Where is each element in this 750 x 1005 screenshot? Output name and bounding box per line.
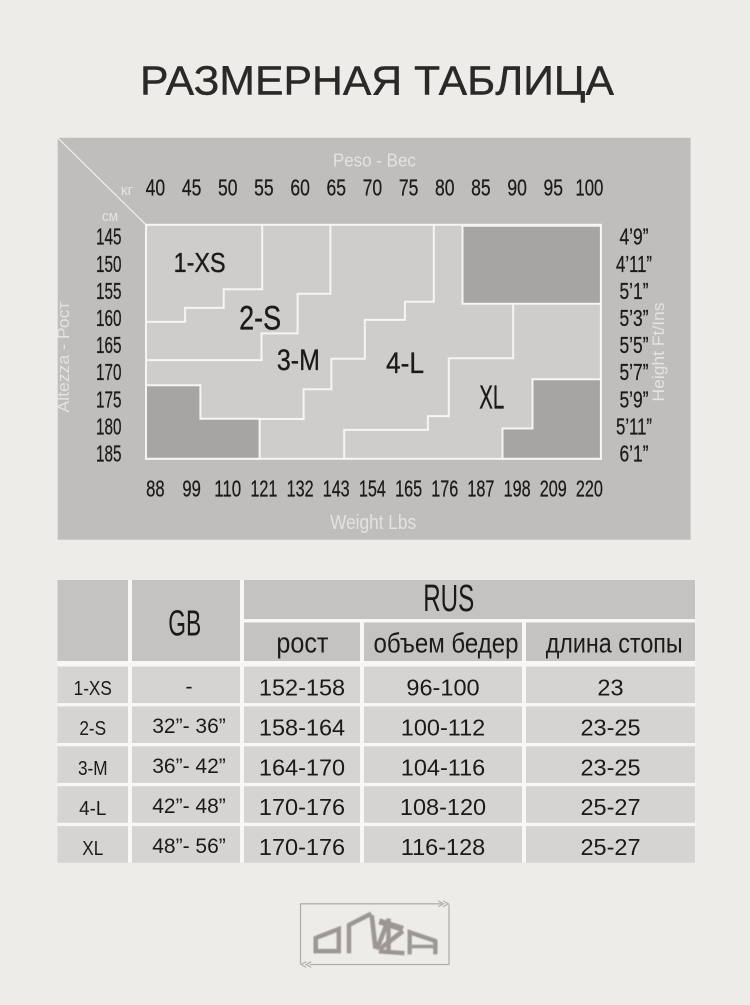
svg-text:198: 198	[504, 476, 531, 502]
svg-text:Height Ft/Ins: Height Ft/Ins	[649, 303, 668, 402]
svg-text:1-XS: 1-XS	[174, 247, 226, 278]
svg-text:4-L: 4-L	[386, 347, 424, 380]
svg-text:5’5”: 5’5”	[620, 332, 649, 358]
svg-text:3-M: 3-M	[277, 344, 320, 377]
svg-text:175: 175	[96, 386, 122, 412]
svg-text:132: 132	[287, 476, 314, 502]
svg-text:152-158: 152-158	[259, 675, 345, 701]
svg-text:154: 154	[359, 476, 386, 502]
svg-text:длина стопы: длина стопы	[546, 628, 683, 659]
svg-text:5’3”: 5’3”	[620, 305, 649, 331]
svg-text:185: 185	[96, 441, 122, 467]
svg-text:209: 209	[540, 476, 567, 502]
svg-text:40: 40	[146, 175, 166, 201]
svg-text:РАЗМЕРНАЯ ТАБЛИЦА: РАЗМЕРНАЯ ТАБЛИЦА	[140, 58, 615, 104]
svg-text:85: 85	[471, 175, 491, 201]
svg-text:5’9”: 5’9”	[620, 386, 649, 412]
svg-text:90: 90	[507, 175, 527, 201]
svg-text:Altezza - Рост: Altezza - Рост	[54, 301, 73, 412]
svg-text:GB: GB	[168, 603, 201, 644]
svg-text:23-25: 23-25	[580, 714, 640, 740]
svg-text:объем бедер: объем бедер	[374, 628, 519, 659]
svg-text:60: 60	[290, 175, 310, 201]
svg-text:75: 75	[399, 175, 419, 201]
svg-text:55: 55	[254, 175, 274, 201]
svg-text:23-25: 23-25	[580, 754, 640, 780]
svg-text:6’1”: 6’1”	[620, 441, 649, 467]
svg-text:110: 110	[214, 476, 241, 502]
svg-text:170: 170	[96, 359, 122, 385]
svg-text:4’11”: 4’11”	[616, 251, 652, 277]
svg-text:187: 187	[467, 476, 494, 502]
svg-text:23: 23	[597, 675, 623, 701]
svg-text:Weight Lbs: Weight Lbs	[330, 511, 416, 534]
svg-text:108-120: 108-120	[400, 794, 486, 820]
svg-text:176: 176	[431, 476, 458, 502]
svg-text:104-116: 104-116	[401, 754, 486, 780]
svg-text:1-XS: 1-XS	[74, 677, 112, 700]
svg-text:143: 143	[323, 476, 350, 502]
svg-text:99: 99	[182, 476, 201, 502]
svg-text:2-S: 2-S	[239, 299, 281, 337]
svg-text:4-L: 4-L	[79, 797, 106, 820]
svg-text:70: 70	[363, 175, 383, 201]
svg-text:25-27: 25-27	[580, 834, 640, 860]
svg-text:32”- 36”: 32”- 36”	[152, 715, 226, 738]
svg-text:158-164: 158-164	[259, 714, 345, 740]
svg-text:рост: рост	[276, 628, 328, 660]
svg-text:95: 95	[544, 175, 564, 201]
svg-text:160: 160	[96, 305, 122, 331]
svg-text:100-112: 100-112	[401, 714, 486, 740]
svg-text:180: 180	[96, 413, 122, 439]
svg-text:100: 100	[575, 175, 603, 201]
svg-text:220: 220	[576, 476, 603, 502]
svg-text:36”- 42”: 36”- 42”	[152, 755, 226, 778]
svg-text:48”- 56”: 48”- 56”	[152, 835, 226, 858]
svg-text:145: 145	[96, 224, 122, 250]
svg-text:80: 80	[435, 175, 455, 201]
svg-text:Peso - Вес: Peso - Вес	[333, 149, 416, 170]
svg-text:165: 165	[395, 476, 422, 502]
svg-text:121: 121	[250, 476, 277, 502]
svg-text:50: 50	[218, 175, 238, 201]
svg-text:см: см	[102, 208, 118, 225]
svg-text:164-170: 164-170	[259, 754, 345, 780]
svg-text:170-176: 170-176	[259, 794, 345, 820]
svg-text:3-M: 3-M	[78, 757, 108, 780]
svg-text:65: 65	[326, 175, 346, 201]
svg-text:-: -	[186, 675, 193, 698]
svg-text:155: 155	[96, 278, 122, 304]
svg-text:5’11”: 5’11”	[616, 413, 652, 439]
svg-text:XL: XL	[82, 837, 103, 860]
svg-text:45: 45	[182, 175, 202, 201]
svg-text:96-100: 96-100	[406, 675, 479, 701]
svg-text:42”- 48”: 42”- 48”	[152, 795, 226, 818]
svg-text:2-S: 2-S	[79, 717, 106, 740]
svg-text:кг: кг	[121, 182, 134, 199]
svg-text:88: 88	[146, 476, 165, 502]
svg-text:5’7”: 5’7”	[620, 359, 649, 385]
svg-text:150: 150	[96, 251, 122, 277]
svg-text:25-27: 25-27	[580, 794, 640, 820]
svg-text:XL: XL	[479, 378, 504, 415]
svg-text:165: 165	[96, 332, 122, 358]
svg-text:170-176: 170-176	[259, 834, 345, 860]
svg-text:5’1”: 5’1”	[620, 278, 649, 304]
svg-text:116-128: 116-128	[401, 834, 486, 860]
svg-text:RUS: RUS	[423, 578, 474, 620]
svg-text:4’9”: 4’9”	[620, 224, 649, 250]
